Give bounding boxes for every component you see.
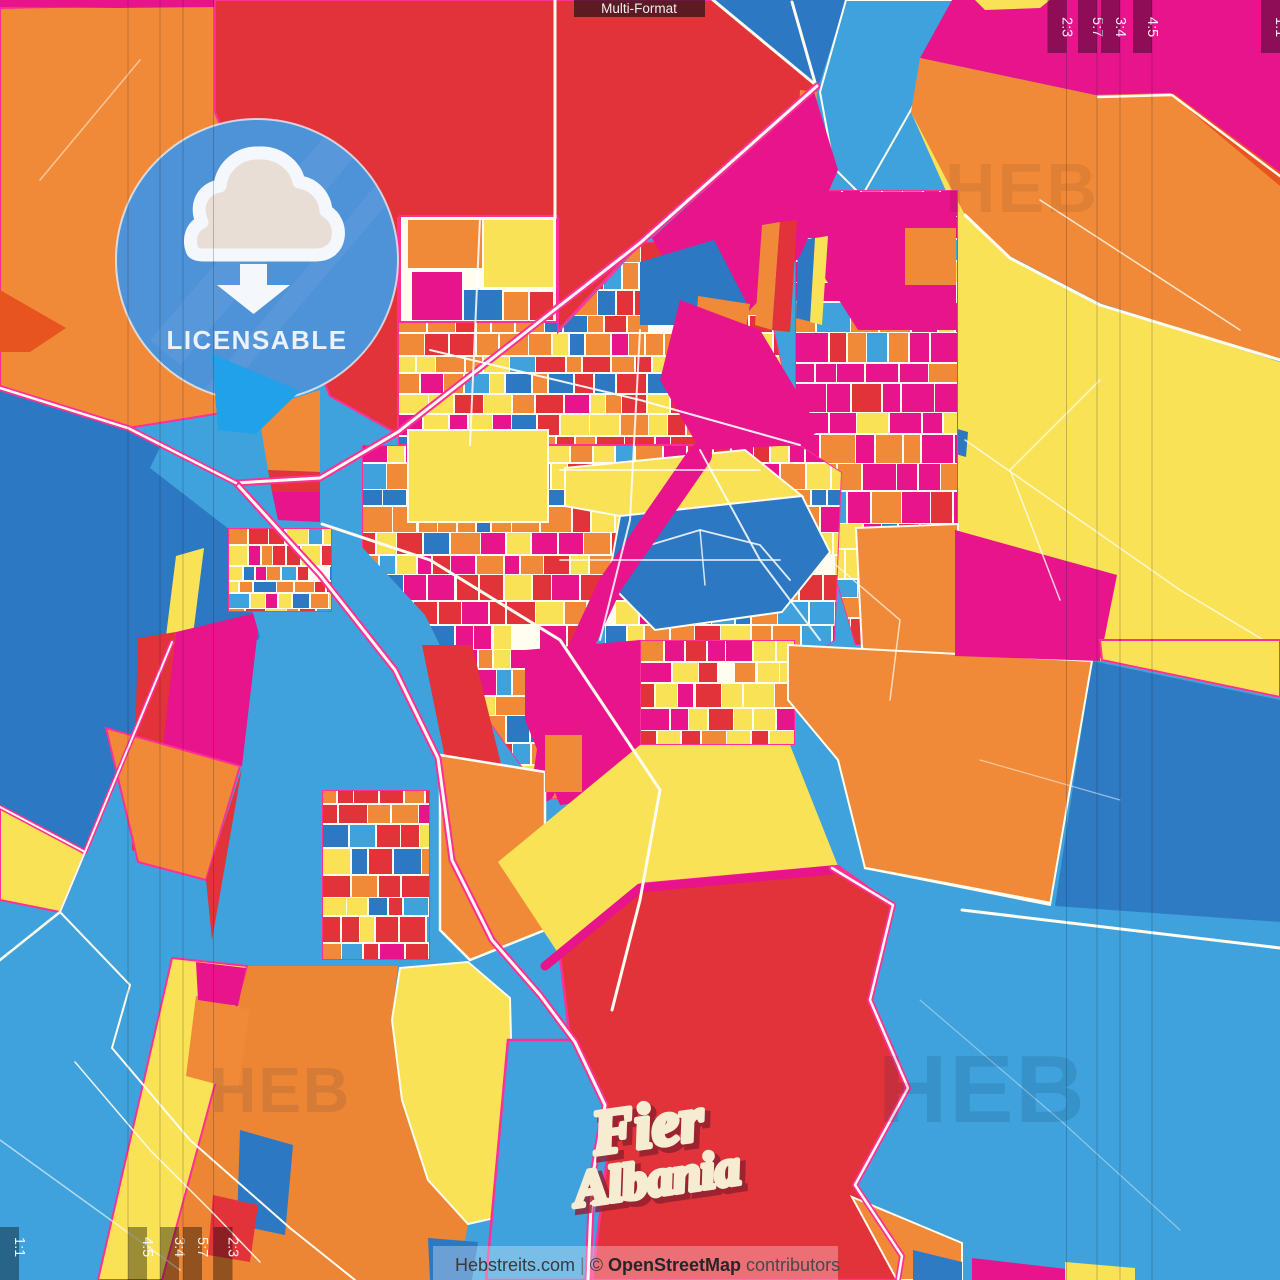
svg-text:1:1: 1:1 bbox=[1272, 17, 1280, 37]
svg-text:1:1: 1:1 bbox=[11, 1237, 27, 1257]
svg-text:4:5: 4:5 bbox=[1144, 17, 1160, 37]
svg-text:5:7: 5:7 bbox=[194, 1237, 210, 1257]
svg-text:LICENSABLE: LICENSABLE bbox=[166, 325, 347, 355]
svg-text:HEB: HEB bbox=[878, 1036, 1087, 1143]
svg-text:3:4: 3:4 bbox=[1112, 17, 1128, 37]
svg-text:4:5: 4:5 bbox=[139, 1237, 155, 1257]
svg-text:Hebstreits.com | © OpenStreetM: Hebstreits.com | © OpenStreetMap contrib… bbox=[455, 1255, 840, 1275]
svg-text:2:3: 2:3 bbox=[1059, 17, 1075, 37]
svg-text:HEB: HEB bbox=[210, 1054, 351, 1126]
svg-text:2:3: 2:3 bbox=[225, 1237, 241, 1257]
svg-text:HEB: HEB bbox=[945, 149, 1099, 227]
svg-text:Multi-Format: Multi-Format bbox=[601, 1, 677, 16]
